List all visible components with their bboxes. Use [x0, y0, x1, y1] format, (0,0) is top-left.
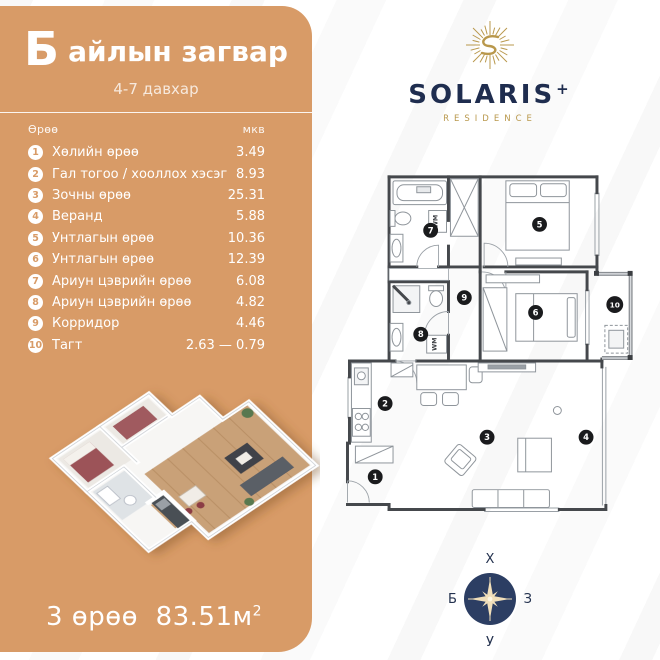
svg-text:8: 8 — [418, 329, 424, 339]
row-number-badge: 4 — [28, 209, 43, 224]
room-table: 1 Хөлийн өрөө 3.49 2 Гал тогоо / хооллох… — [0, 142, 312, 356]
compass-south-label: У — [446, 635, 534, 650]
stove — [352, 409, 370, 437]
table-row: 2 Гал тогоо / хооллох хэсэг 8.93 — [0, 163, 312, 184]
toilet-7 — [390, 211, 395, 227]
compass-east-label: З — [524, 592, 532, 607]
row-number-badge: 8 — [28, 295, 43, 310]
compass-north-label: Х — [446, 552, 534, 567]
svg-text:WM: WM — [431, 337, 439, 350]
table-row: 1 Хөлийн өрөө 3.49 — [0, 142, 312, 163]
room-area: 10.36 — [228, 231, 265, 246]
compass: Х У Б З — [446, 552, 534, 650]
brand-residence: RESIDENCE — [388, 114, 592, 124]
room-name: Ариун цэврийн өрөө — [52, 295, 227, 310]
svg-text:1: 1 — [372, 472, 378, 482]
room-area: 4.82 — [236, 295, 265, 310]
room-name: Веранд — [52, 209, 227, 224]
table-row: 3 Зочны өрөө 25.31 — [0, 185, 312, 206]
chair — [421, 393, 437, 406]
room-area: 5.88 — [236, 209, 265, 224]
table-row: 8 Ариун цэврийн өрөө 4.82 — [0, 292, 312, 313]
table-row: 5 Унтлагын өрөө 10.36 — [0, 228, 312, 249]
column-room: Өрөө — [28, 123, 58, 136]
svg-text:4: 4 — [583, 432, 589, 442]
svg-text:5: 5 — [537, 219, 543, 229]
sunburst-icon — [453, 12, 527, 74]
plant — [553, 407, 561, 415]
row-number-badge: 3 — [28, 188, 43, 203]
svg-text:9: 9 — [461, 293, 467, 303]
room-name: Унтлагын өрөө — [52, 231, 219, 246]
svg-text:2: 2 — [382, 399, 388, 409]
page-title: Байлын загвар — [10, 26, 302, 72]
svg-text:7: 7 — [428, 225, 434, 235]
apartment-info-panel: Байлын загвар 4-7 давхар Өрөө мкв 1 Хөли… — [0, 6, 312, 652]
summary-rooms: 3 өрөө — [46, 602, 138, 632]
floorplan-2d: WM WM 1 2 3 4 5 6 7 8 9 10 — [331, 163, 659, 557]
room-area: 25.31 — [228, 188, 265, 203]
apartment-type-letter: Б — [24, 22, 60, 76]
brand-plus: + — [556, 80, 572, 98]
table-header: Өрөө мкв — [0, 113, 312, 140]
plan-furniture — [351, 179, 627, 508]
row-number-badge: 6 — [28, 252, 43, 267]
table-row: 4 Веранд 5.88 — [0, 206, 312, 227]
summary-area: 83.51м — [156, 602, 253, 632]
coffee-table — [518, 438, 552, 472]
chair — [443, 393, 459, 406]
table-row: 7 Ариун цэврийн өрөө 6.08 — [0, 270, 312, 291]
brand-logo: SOLARIS+ RESIDENCE — [388, 12, 592, 124]
room-area: 3.49 — [236, 145, 265, 160]
title-text: айлын загвар — [68, 35, 288, 68]
svg-text:3: 3 — [484, 432, 490, 442]
sofa — [472, 490, 549, 508]
row-number-badge: 1 — [28, 145, 43, 160]
row-number-badge: 5 — [28, 231, 43, 246]
room-name: Зочны өрөө — [52, 188, 219, 203]
iso-apartment — [52, 358, 315, 567]
brand-name: SOLARIS+ — [388, 80, 592, 110]
room-name: Унтлагын өрөө — [52, 252, 219, 267]
bench-5 — [516, 258, 562, 265]
floor-range-subtitle: 4-7 давхар — [0, 80, 312, 98]
plan-shaft — [389, 268, 448, 280]
row-number-badge: 9 — [28, 316, 43, 331]
room-name: Гал тогоо / хооллох хэсэг — [52, 167, 227, 182]
svg-text:10: 10 — [610, 301, 620, 310]
row-number-badge: 2 — [28, 167, 43, 182]
total-area-summary: 3 өрөө 83.51м2 — [46, 602, 262, 632]
room-area: 8.93 — [236, 167, 265, 182]
toilet-8 — [429, 286, 444, 291]
isometric-floorplan-render — [44, 328, 320, 606]
table-row: 6 Унтлагын өрөө 12.39 — [0, 249, 312, 270]
dining-table — [417, 365, 466, 390]
room-area: 6.08 — [236, 274, 265, 289]
room-name: Хөлийн өрөө — [52, 145, 227, 160]
room-area: 12.39 — [228, 252, 265, 267]
compass-west-label: Б — [448, 592, 457, 607]
svg-text:6: 6 — [533, 307, 539, 317]
shelf-6 — [486, 275, 539, 283]
column-area: мкв — [243, 123, 265, 136]
row-number-badge: 10 — [28, 338, 43, 353]
room-name: Ариун цэврийн өрөө — [52, 274, 227, 289]
row-number-badge: 7 — [28, 274, 43, 289]
armchair — [444, 443, 477, 476]
summary-sup: 2 — [253, 603, 262, 619]
